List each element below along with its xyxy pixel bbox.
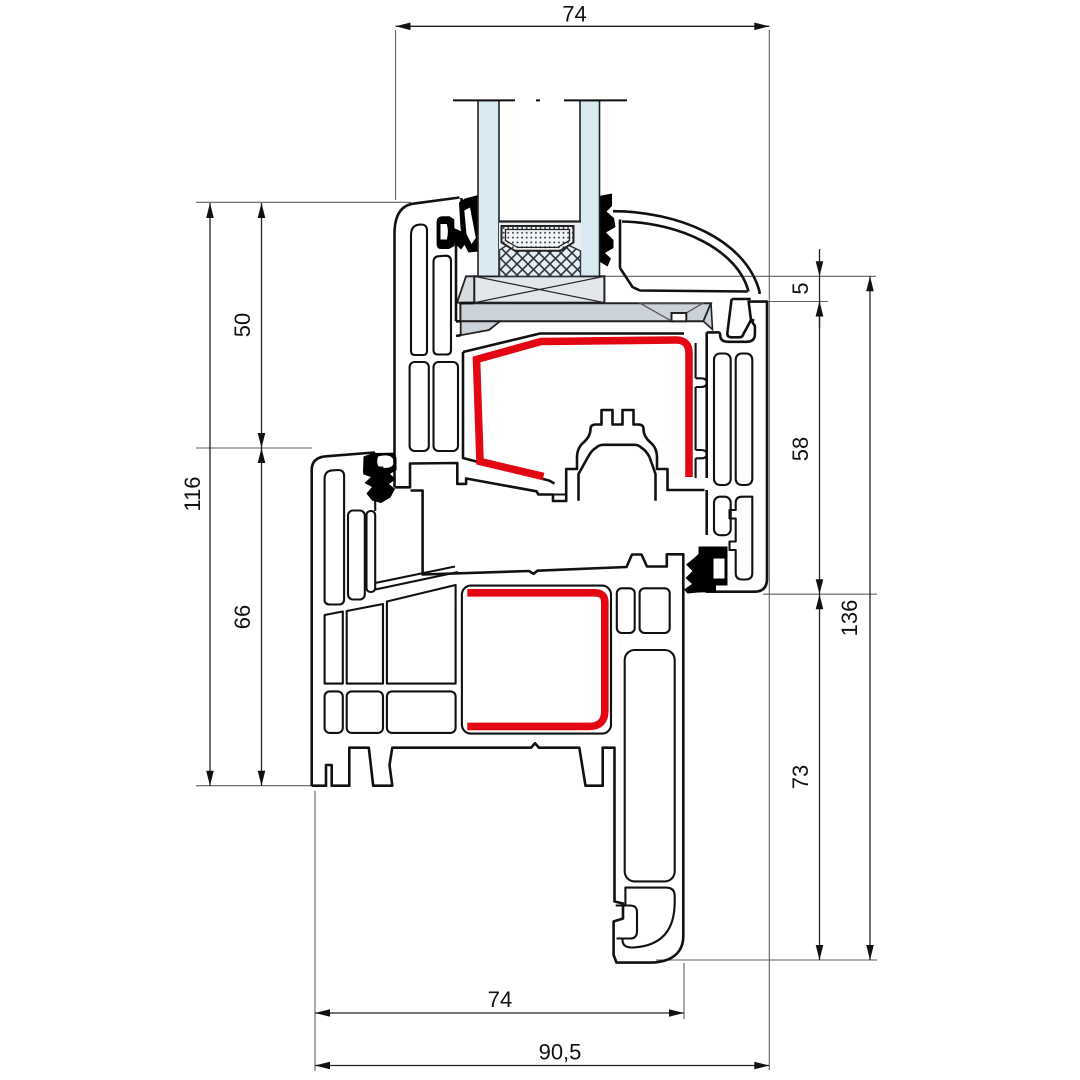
svg-text:74: 74 — [562, 2, 586, 27]
svg-text:136: 136 — [837, 600, 862, 637]
svg-text:50: 50 — [230, 313, 255, 337]
svg-text:58: 58 — [788, 437, 813, 461]
svg-text:73: 73 — [788, 765, 813, 789]
svg-text:66: 66 — [230, 605, 255, 629]
svg-text:116: 116 — [180, 476, 205, 511]
svg-text:74: 74 — [488, 987, 512, 1012]
svg-text:90,5: 90,5 — [539, 1040, 582, 1065]
svg-text:5: 5 — [788, 282, 813, 294]
